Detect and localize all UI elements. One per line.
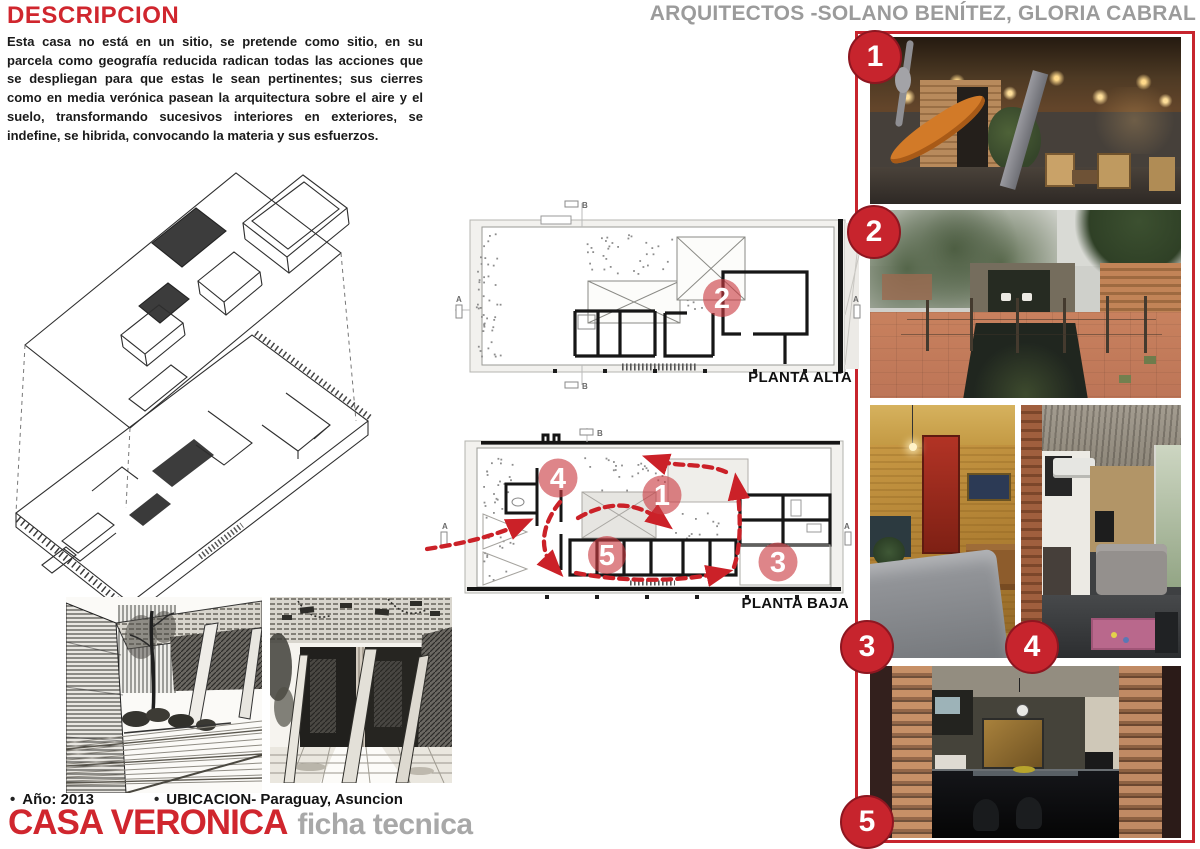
sketch-interior bbox=[270, 597, 452, 783]
photo-fragment bbox=[1095, 511, 1114, 541]
photo-fragment bbox=[1022, 293, 1032, 301]
photo-fragment bbox=[1144, 356, 1156, 364]
photo-fragment bbox=[1119, 375, 1131, 383]
photo-fragment bbox=[967, 473, 1011, 501]
photo-badge-3: 3 bbox=[840, 620, 894, 674]
presentation-sheet: DESCRIPCION ARQUITECTOS -SOLANO BENÍTEZ,… bbox=[0, 0, 1200, 849]
photo-1-patio-hammock bbox=[870, 37, 1181, 204]
svg-text:B: B bbox=[582, 201, 588, 210]
photo-fragment bbox=[926, 300, 929, 351]
photo-fragment bbox=[1097, 153, 1131, 189]
photo-fragment bbox=[1013, 766, 1035, 773]
photo-badge-1: 1 bbox=[848, 30, 902, 84]
plan-badge-5: 5 bbox=[588, 536, 626, 574]
architects-heading: ARQUITECTOS -SOLANO BENÍTEZ, GLORIA CABR… bbox=[496, 2, 1196, 26]
photo-fragment bbox=[935, 697, 960, 714]
svg-text:2: 2 bbox=[714, 283, 730, 315]
plan-badge-1: 1 bbox=[643, 476, 682, 515]
photo-fragment bbox=[1144, 296, 1147, 352]
photo-fragment bbox=[970, 298, 973, 351]
photo-fragment bbox=[1106, 296, 1109, 352]
description-paragraph: Esta casa no está en un sitio, se preten… bbox=[7, 33, 423, 145]
photo-2-roof-terrace bbox=[870, 210, 1181, 398]
plan-planta-alta: B B A A 2 bbox=[455, 195, 865, 395]
svg-text:A: A bbox=[442, 522, 448, 531]
photo-fragment bbox=[1096, 544, 1166, 595]
photo-fragment bbox=[1016, 704, 1029, 717]
photo-fragment bbox=[1085, 752, 1113, 769]
photo-column-frame bbox=[855, 31, 1195, 843]
photo-fragment bbox=[1155, 612, 1177, 652]
photo-fragment bbox=[1001, 293, 1011, 301]
sketch-courtyard bbox=[66, 597, 262, 793]
photo-fragment bbox=[1063, 298, 1066, 353]
svg-text:A: A bbox=[456, 295, 462, 304]
photo-fragment bbox=[1111, 632, 1117, 638]
photo-fragment bbox=[988, 270, 1050, 311]
photo-fragment bbox=[1019, 678, 1020, 692]
svg-text:3: 3 bbox=[770, 547, 786, 579]
plan-badge-2: 2 bbox=[703, 279, 741, 317]
svg-text:A: A bbox=[844, 522, 850, 531]
photo-4-living-room bbox=[1021, 405, 1181, 658]
plan-baja-label: PLANTA BAJA bbox=[689, 595, 849, 612]
photo-badge-2: 2 bbox=[847, 205, 901, 259]
project-title: CASA VERONICA bbox=[8, 803, 287, 843]
photo-fragment bbox=[922, 435, 960, 554]
photo-3-bedroom bbox=[870, 405, 1015, 658]
section-title: DESCRIPCION bbox=[7, 2, 179, 30]
photo-fragment bbox=[1053, 458, 1095, 478]
photo-fragment bbox=[973, 799, 999, 831]
photo-fragment bbox=[907, 319, 1156, 320]
photo-fragment bbox=[870, 167, 1181, 204]
footer-title: CASA VERONICA ficha tecnica bbox=[8, 803, 473, 843]
photo-badge-5: 5 bbox=[840, 795, 894, 849]
photo-fragment bbox=[1162, 666, 1181, 838]
photo-fragment bbox=[1016, 298, 1019, 353]
photo-fragment bbox=[1088, 87, 1181, 154]
plan-planta-baja: B A A 4 1 5 3 bbox=[425, 428, 870, 620]
photo-5-kitchen bbox=[870, 666, 1181, 838]
svg-text:B: B bbox=[597, 429, 603, 438]
plan-badge-3: 3 bbox=[759, 543, 798, 582]
plan-badge-4: 4 bbox=[539, 459, 578, 498]
photo-fragment bbox=[882, 274, 932, 300]
svg-text:B: B bbox=[582, 382, 588, 391]
photo-fragment bbox=[1016, 797, 1042, 829]
photo-fragment bbox=[892, 666, 932, 838]
photo-fragment bbox=[1119, 666, 1163, 838]
photo-fragment bbox=[982, 718, 1044, 770]
sheet-subtitle: ficha tecnica bbox=[297, 808, 472, 842]
svg-text:4: 4 bbox=[550, 463, 566, 495]
photo-fragment bbox=[901, 334, 1162, 335]
photo-badge-4: 4 bbox=[1005, 620, 1059, 674]
svg-text:A: A bbox=[853, 295, 859, 304]
svg-text:5: 5 bbox=[599, 540, 615, 572]
plan-alta-label: PLANTA ALTA bbox=[692, 369, 852, 386]
axonometric-drawing bbox=[0, 163, 420, 621]
photo-fragment bbox=[1149, 157, 1175, 191]
photo-fragment bbox=[912, 405, 913, 443]
photo-fragment bbox=[1045, 153, 1075, 187]
svg-text:1: 1 bbox=[654, 480, 670, 512]
